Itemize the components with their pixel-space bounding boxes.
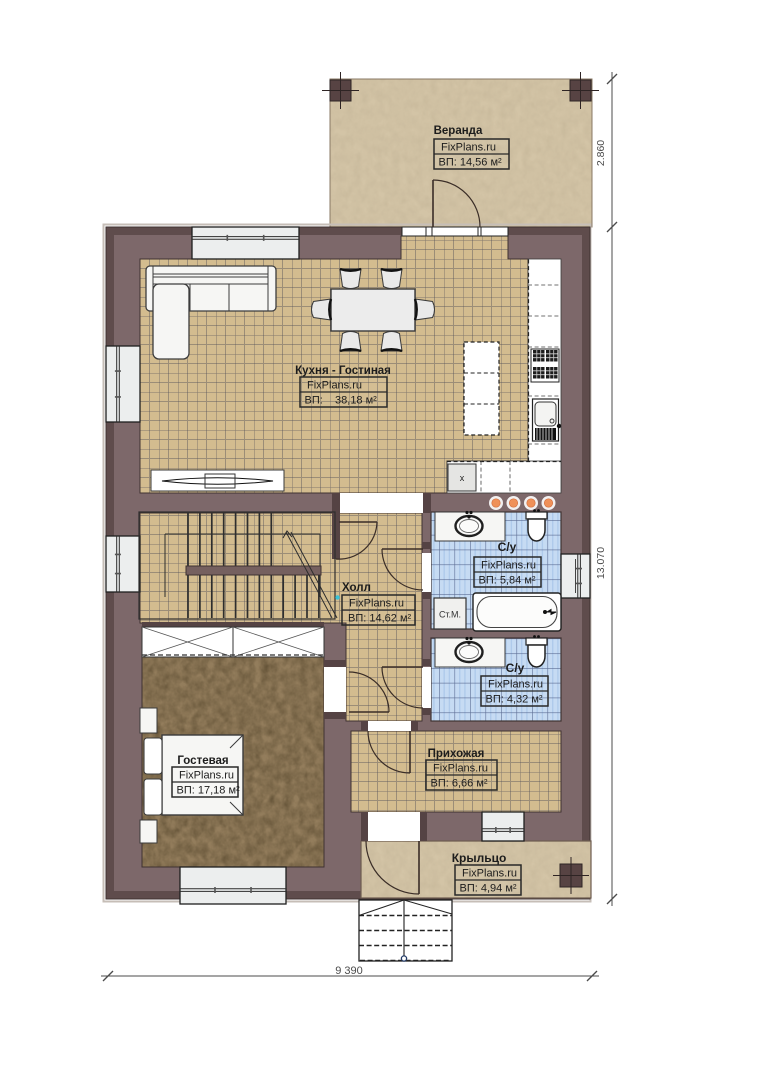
svg-text:Ст.М.: Ст.М. (439, 610, 461, 620)
svg-text:Холл: Холл (342, 582, 371, 594)
svg-text:С/у: С/у (498, 540, 517, 554)
svg-text:9 390: 9 390 (335, 965, 363, 977)
svg-text:Кухня - Гостиная: Кухня - Гостиная (295, 365, 391, 377)
svg-text:ВП: 4,32 м²: ВП: 4,32 м² (486, 694, 543, 706)
svg-text:FixPlans.ru: FixPlans.ru (441, 142, 496, 154)
svg-text:Крыльцо: Крыльцо (452, 851, 507, 865)
svg-text:ВП: 38,18 м²: ВП: 38,18 м² (305, 395, 378, 407)
svg-text:Веранда: Веранда (434, 125, 483, 137)
svg-text:ВП: 14,56 м²: ВП: 14,56 м² (439, 157, 503, 169)
svg-text:Прихожая: Прихожая (428, 748, 485, 760)
svg-text:2.860: 2.860 (595, 140, 607, 166)
svg-text:ВП: 5,84 м²: ВП: 5,84 м² (479, 575, 536, 587)
svg-text:FixPlans.ru: FixPlans.ru (481, 560, 536, 572)
svg-text:ВП: 6,66 м²: ВП: 6,66 м² (431, 778, 488, 790)
svg-text:ВП: 17,18 м²: ВП: 17,18 м² (177, 785, 241, 797)
svg-text:FixPlans.ru: FixPlans.ru (462, 868, 517, 880)
svg-text:x: x (460, 473, 465, 483)
svg-text:FixPlans.ru: FixPlans.ru (307, 380, 362, 392)
svg-text:FixPlans.ru: FixPlans.ru (179, 770, 234, 782)
svg-text:Гостевая: Гостевая (177, 755, 228, 767)
svg-text:FixPlans.ru: FixPlans.ru (488, 679, 543, 691)
svg-text:С/у: С/у (506, 661, 525, 675)
svg-text:FixPlans.ru: FixPlans.ru (349, 598, 404, 610)
svg-text:13.070: 13.070 (595, 547, 607, 579)
svg-text:ВП: 14,62 м²: ВП: 14,62 м² (348, 613, 412, 625)
svg-text:ВП: 4,94 м²: ВП: 4,94 м² (460, 883, 517, 895)
svg-text:FixPlans.ru: FixPlans.ru (433, 763, 488, 775)
